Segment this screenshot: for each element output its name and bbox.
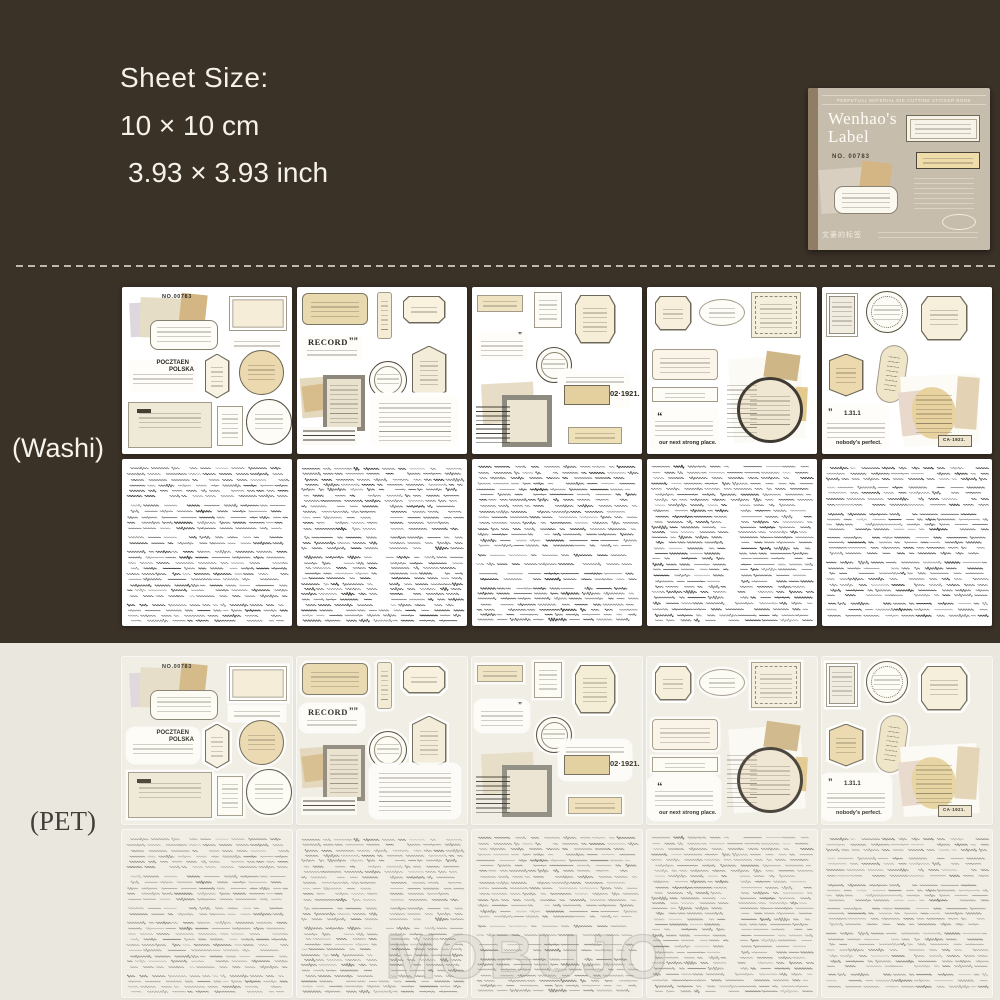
date-text: 02·1921. (610, 759, 640, 768)
dashed-divider (16, 265, 1000, 267)
sticker-sheet-washi-script-2 (297, 459, 467, 626)
text-lines (411, 675, 438, 685)
text-lines (377, 372, 399, 388)
sticker-sheet-washi-labels-2: RECORD”” (297, 287, 467, 454)
text-lines (157, 325, 211, 345)
collage-sticker (725, 353, 813, 449)
script (916, 393, 952, 433)
decoration (656, 667, 691, 700)
die-cut-sticker (652, 663, 694, 703)
sticker-sheet-washi-script-3 (472, 459, 642, 626)
decoration (922, 297, 967, 340)
text-lines (248, 733, 275, 752)
package-title-line2: Label (828, 128, 897, 146)
text-lines (420, 729, 439, 758)
text-lines (665, 391, 705, 398)
text-lines (411, 305, 438, 315)
die-cut-sticker (409, 343, 449, 403)
die-cut-sticker (371, 765, 459, 817)
die-cut-sticker (369, 361, 407, 399)
record-text: RECORD (308, 707, 348, 717)
postal-text: POCZTAEN (156, 730, 189, 736)
decoration (404, 297, 445, 323)
package-bottom-text (878, 230, 978, 242)
text-lines (842, 191, 890, 209)
framed-photo-sticker (323, 745, 365, 801)
postal-text: POCZTAEN (156, 360, 189, 366)
sheet-content: NO.00783POCZTAENPOLSKA (122, 287, 292, 454)
text-lines (476, 405, 510, 445)
text-lines (381, 669, 388, 702)
die-cut-sticker (534, 292, 562, 328)
sticker-sheet-pet-script-4 (647, 830, 817, 997)
script-label (150, 690, 218, 720)
caption (301, 427, 357, 445)
washi-section-label: (Washi) (12, 433, 104, 464)
package-script-label (834, 186, 898, 214)
text-lines (481, 709, 523, 727)
sticker-sheet-pet-labels-2: RECORD”” (297, 657, 467, 824)
decoration (564, 385, 610, 405)
caption (476, 405, 510, 445)
sheet-content: ”02·1921. (472, 657, 642, 824)
text-lines (222, 412, 238, 440)
text-lines (381, 299, 388, 332)
sheet-content (472, 459, 642, 626)
date-text: 02·1921. (610, 389, 640, 398)
quote-marks: ”” (349, 336, 358, 346)
sheet-content: ”1.31.1nobody's perfect.CA·1921. (822, 657, 992, 824)
sheet-content (822, 459, 992, 626)
die-cut-sticker (230, 707, 284, 720)
text-lines (663, 307, 684, 320)
text-lines (709, 676, 735, 689)
text-lines (539, 298, 557, 322)
text-lines (575, 431, 615, 440)
quote-marks: ” (518, 331, 522, 340)
collage-sticker (476, 753, 554, 819)
text-lines (379, 401, 451, 441)
sheet-content (647, 459, 817, 626)
text-lines (133, 742, 193, 758)
text-lines (307, 718, 357, 728)
sheet-content (647, 830, 817, 997)
sticker-sheet-pet-script-2 (297, 830, 467, 997)
die-cut-sticker (568, 427, 622, 444)
script (916, 763, 952, 803)
sheet-size-inch: 3.93 × 3.93 inch (128, 157, 328, 189)
text-lines (311, 670, 359, 688)
sheet-content (297, 459, 467, 626)
sheet-content (122, 459, 292, 626)
text-lines (211, 735, 224, 758)
die-cut-sticker: ” (476, 331, 528, 361)
quote-marks: ” (518, 701, 522, 710)
text-lines (476, 775, 510, 815)
text-lines (827, 421, 885, 438)
sticker-sheet-pet-script-1 (122, 830, 292, 997)
sheet-content: RECORD”” (297, 657, 467, 824)
die-cut-sticker: “our next strong place. (649, 407, 719, 449)
text-lines (836, 366, 857, 385)
text-lines (483, 299, 517, 308)
text-lines (566, 375, 624, 383)
text-lines (303, 799, 355, 813)
die-cut-sticker: “our next strong place. (649, 777, 719, 819)
die-cut-sticker: RECORD”” (301, 705, 363, 731)
text-lines (255, 782, 283, 802)
sheet-content: “our next strong place. (647, 657, 817, 824)
package-oval-stamp (942, 214, 976, 230)
die-cut-sticker: 02·1921. (560, 371, 630, 409)
text-lines (248, 363, 275, 382)
sticker-sheet-washi-script-5 (822, 459, 992, 626)
text-lines (139, 781, 201, 799)
text-lines (133, 372, 193, 388)
quote-marks: ” (828, 407, 833, 417)
text-lines (330, 753, 358, 793)
decoration (206, 725, 229, 768)
text-lines (930, 308, 959, 329)
die-cut-sticker (699, 299, 745, 326)
sticker-sheet-washi-script-4 (647, 459, 817, 626)
die-cut-sticker (477, 295, 523, 312)
sticker-sheet-pet-labels-3: ”02·1921. (472, 657, 642, 824)
text-lines (655, 789, 713, 807)
collage-sticker (301, 371, 363, 447)
script (727, 753, 757, 807)
package-spine (808, 88, 818, 250)
text-lines (827, 791, 885, 808)
text-lines (539, 668, 557, 692)
die-cut-sticker (217, 776, 243, 816)
die-cut-sticker: ”1.31.1nobody's perfect. (822, 775, 890, 819)
text-lines (303, 429, 355, 443)
package-series-line: PERPETUAL MATERIAL DIE-CUTTING STICKER B… (822, 95, 986, 105)
sheet-content (822, 830, 992, 997)
sheet-content (472, 830, 642, 997)
date-text: 1.31.1 (844, 411, 861, 417)
sheet-size-cm: 10 × 10 cm (120, 110, 328, 142)
collage-sticker (725, 723, 813, 819)
die-cut-sticker (826, 293, 858, 337)
die-cut-sticker (302, 293, 368, 325)
die-cut-sticker (377, 662, 392, 709)
sheet-size-label: Sheet Size: (120, 62, 328, 94)
die-cut-sticker (246, 399, 292, 445)
postal-text: POLSKA (169, 737, 194, 743)
sheet-size-info: Sheet Size: 10 × 10 cm 3.93 × 3.93 inch (120, 62, 328, 189)
text-lines (874, 673, 900, 691)
die-cut-sticker (239, 720, 284, 765)
package-title: Wenhao's Label (828, 110, 897, 147)
die-cut-sticker (918, 293, 970, 343)
text-lines (915, 122, 971, 135)
text-lines (916, 393, 952, 433)
text-lines (139, 411, 201, 429)
decoration (576, 296, 615, 343)
text-lines (655, 419, 713, 437)
quote-marks: ” (828, 777, 833, 787)
product-package: PERPETUAL MATERIAL DIE-CUTTING STICKER B… (808, 88, 990, 250)
die-cut-sticker (400, 293, 448, 326)
caption (476, 775, 510, 815)
date-text: CA·1921. (943, 807, 965, 812)
decoration (206, 355, 229, 398)
die-cut-sticker (699, 669, 745, 696)
sheet-content: “our next strong place. (647, 287, 817, 454)
date-text: 1.31.1 (844, 781, 861, 787)
text-lines (377, 742, 399, 758)
sticker-sheet-washi-labels-3: ”02·1921. (472, 287, 642, 454)
package-chinese-label: 文豪的标签 (822, 230, 862, 240)
text-lines (709, 306, 735, 319)
decoration (576, 666, 615, 713)
die-cut-sticker (202, 351, 232, 401)
sticker-sheet-washi-script-1 (122, 459, 292, 626)
die-cut-sticker (230, 337, 284, 350)
text-lines (211, 365, 224, 388)
script (727, 383, 757, 437)
die-cut-sticker (302, 663, 368, 695)
die-cut-sticker (652, 757, 718, 772)
die-cut-sticker (377, 292, 392, 339)
sticker-sheet-pet-labels-4: “our next strong place. (647, 657, 817, 824)
text-lines (157, 695, 211, 715)
quote-marks: ”” (349, 706, 358, 716)
collage-sticker (476, 383, 554, 449)
text-lines (222, 782, 238, 810)
die-cut-sticker (918, 663, 970, 713)
decoration (413, 717, 446, 770)
die-cut-sticker (369, 731, 407, 769)
decoration (830, 355, 863, 396)
text-lines (727, 753, 757, 807)
small-label: CA·1921. (938, 805, 972, 817)
sticker-sheet-washi-labels-5: ”1.31.1nobody's perfect.CA·1921. (822, 287, 992, 454)
die-cut-sticker (409, 713, 449, 773)
die-cut-sticker (202, 721, 232, 771)
text-lines (930, 678, 959, 699)
sticker-sheet-washi-labels-1: NO.00783POCZTAENPOLSKA (122, 287, 292, 454)
text-lines (234, 709, 280, 718)
package-side-text (914, 176, 974, 212)
decoration (830, 725, 863, 766)
text-lines (874, 303, 900, 321)
text-lines (420, 359, 439, 388)
collage-sticker (301, 741, 363, 817)
die-cut-sticker (572, 662, 618, 716)
paper-scrap (954, 376, 980, 429)
sheet-content: ”1.31.1nobody's perfect.CA·1921. (822, 287, 992, 454)
collage-sticker: NO.00783 (128, 294, 224, 350)
die-cut-sticker (246, 769, 292, 815)
framed-photo-sticker (323, 375, 365, 431)
text-lines (483, 669, 517, 678)
die-cut-sticker (826, 721, 866, 769)
text-lines (760, 672, 792, 698)
text-lines (760, 302, 792, 328)
die-cut-sticker (866, 661, 908, 703)
sticker-sheet-pet-labels-1: NO.00783POCZTAENPOLSKA (122, 657, 292, 824)
decoration (656, 297, 691, 330)
text-lines (660, 726, 710, 743)
postal-text: POLSKA (169, 367, 194, 373)
text-lines (663, 677, 684, 690)
die-cut-sticker (751, 662, 801, 708)
die-cut-sticker: 02·1921. (560, 741, 630, 779)
die-cut-sticker (652, 719, 718, 750)
text-lines (543, 727, 565, 743)
paper-scrap (954, 746, 980, 799)
text-lines (543, 357, 565, 373)
sticker-sheet-pet-script-5 (822, 830, 992, 997)
package-item-number: NO. 00783 (832, 154, 870, 160)
die-cut-sticker (477, 665, 523, 682)
die-cut-sticker (826, 663, 858, 707)
script-label (150, 320, 218, 350)
text-lines (481, 339, 523, 357)
text-lines (307, 348, 357, 358)
die-cut-sticker (400, 663, 448, 696)
die-cut-sticker (866, 291, 908, 333)
text-lines (255, 412, 283, 432)
text-lines (330, 383, 358, 423)
caption (301, 797, 357, 815)
die-cut-sticker (826, 351, 866, 399)
decoration (922, 667, 967, 710)
sheet-content (122, 830, 292, 997)
sheet-content: NO.00783POCZTAENPOLSKA (122, 657, 292, 824)
die-cut-sticker: ”1.31.1nobody's perfect. (822, 405, 890, 449)
sticker-sheet-pet-labels-5: ”1.31.1nobody's perfect.CA·1921. (822, 657, 992, 824)
small-label: CA·1921. (938, 435, 972, 447)
decoration (137, 779, 151, 783)
die-cut-sticker: POCZTAENPOLSKA (128, 359, 198, 392)
die-cut-sticker (751, 292, 801, 338)
decoration (404, 667, 445, 693)
die-cut-sticker (229, 666, 287, 701)
text-lines (727, 383, 757, 437)
strong-place-text: our next strong place. (659, 810, 716, 816)
collage-sticker: CA·1921. (898, 743, 986, 821)
die-cut-sticker (652, 349, 718, 380)
package-title-line1: Wenhao's (828, 110, 897, 128)
text-lines (923, 156, 973, 165)
die-cut-sticker (572, 292, 618, 346)
perfect-text: nobody's perfect. (836, 440, 882, 446)
die-cut-sticker (217, 406, 243, 446)
sheet-content: RECORD”” (297, 287, 467, 454)
decoration (137, 409, 151, 413)
text-lines (832, 300, 852, 330)
die-cut-sticker (568, 797, 622, 814)
decoration (413, 347, 446, 400)
text-lines (311, 300, 359, 318)
sticker-sheet-washi-labels-4: “our next strong place. (647, 287, 817, 454)
text-lines (665, 761, 705, 768)
text-lines (379, 771, 451, 811)
die-cut-sticker (652, 387, 718, 402)
date-text: CA·1921. (943, 437, 965, 442)
perfect-text: nobody's perfect. (836, 810, 882, 816)
die-cut-sticker (371, 395, 459, 447)
sheet-content (297, 830, 467, 997)
text-lines (575, 801, 615, 810)
pet-section-label: (PET) (30, 806, 96, 837)
text-lines (916, 763, 952, 803)
text-lines (836, 736, 857, 755)
text-lines (660, 356, 710, 373)
text-lines (234, 339, 280, 348)
die-cut-sticker (229, 296, 287, 331)
die-cut-sticker: ” (476, 701, 528, 731)
die-cut-sticker: RECORD”” (301, 335, 363, 361)
sheet-content: ”02·1921. (472, 287, 642, 454)
strong-place-text: our next strong place. (659, 440, 716, 446)
die-cut-sticker: POCZTAENPOLSKA (128, 729, 198, 762)
text-lines (583, 306, 608, 333)
die-cut-sticker (239, 350, 284, 395)
item-number-text: NO.00783 (162, 664, 192, 670)
record-text: RECORD (308, 337, 348, 347)
package-label-box (906, 115, 980, 142)
package-tan-label (916, 152, 980, 169)
item-number-text: NO.00783 (162, 294, 192, 300)
die-cut-sticker (652, 293, 694, 333)
collage-sticker: CA·1921. (898, 373, 986, 451)
sticker-sheet-pet-script-3 (472, 830, 642, 997)
text-lines (832, 670, 852, 700)
collage-sticker: NO.00783 (128, 664, 224, 720)
decoration (564, 755, 610, 775)
die-cut-sticker (128, 772, 212, 818)
text-lines (566, 745, 624, 753)
die-cut-sticker (128, 402, 212, 448)
die-cut-sticker (534, 662, 562, 698)
text-lines (583, 676, 608, 703)
